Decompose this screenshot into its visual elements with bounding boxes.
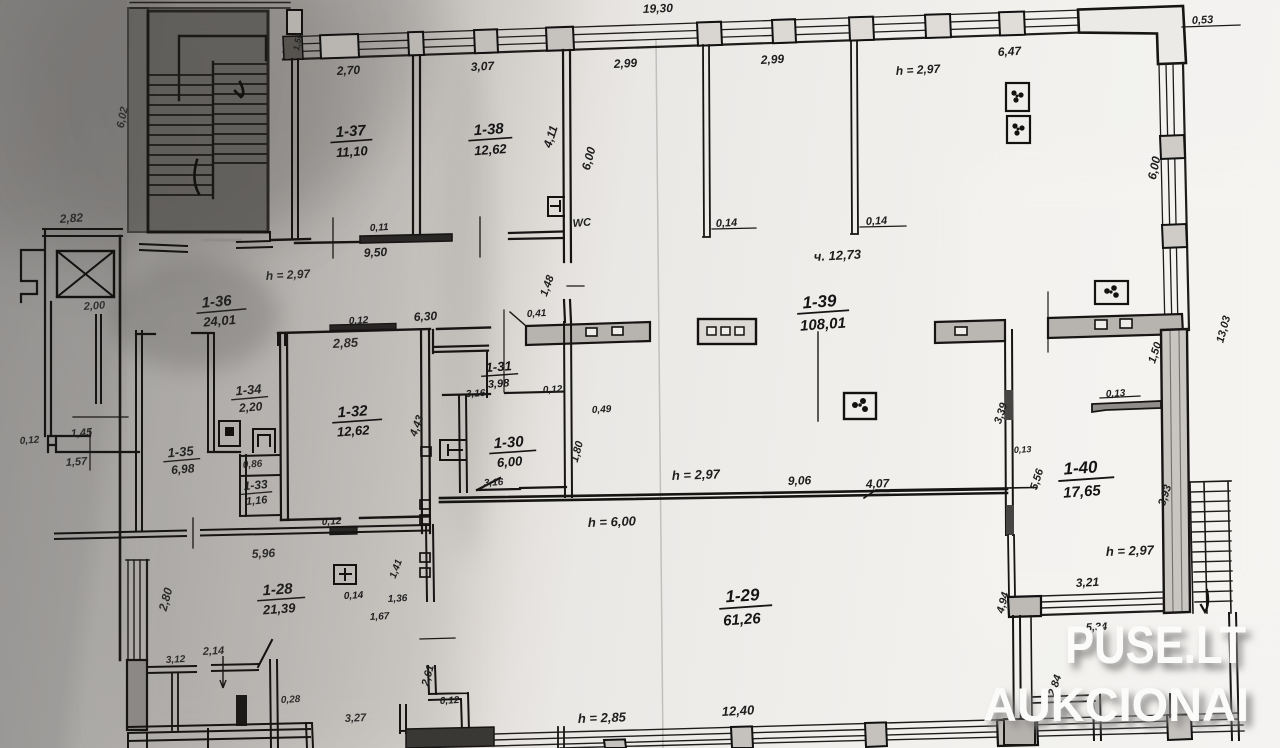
svg-text:0,86: 0,86 bbox=[242, 459, 263, 471]
svg-text:1-38: 1-38 bbox=[473, 120, 505, 139]
svg-text:0,28: 0,28 bbox=[281, 694, 301, 706]
svg-text:17,65: 17,65 bbox=[1063, 482, 1102, 502]
svg-text:1,16: 1,16 bbox=[245, 494, 268, 508]
svg-text:0,53: 0,53 bbox=[1192, 14, 1214, 27]
svg-text:3,16: 3,16 bbox=[466, 388, 486, 400]
svg-text:1,36: 1,36 bbox=[388, 593, 408, 605]
svg-text:12,40: 12,40 bbox=[721, 702, 755, 719]
svg-text:2,99: 2,99 bbox=[759, 52, 784, 67]
svg-text:h = 2,85: h = 2,85 bbox=[578, 709, 627, 726]
svg-text:0,13: 0,13 bbox=[1106, 388, 1126, 400]
svg-text:2,85: 2,85 bbox=[331, 335, 359, 351]
svg-text:21,39: 21,39 bbox=[261, 600, 296, 617]
svg-text:11,10: 11,10 bbox=[336, 143, 369, 160]
svg-text:6,30: 6,30 bbox=[413, 309, 437, 324]
svg-text:1-33: 1-33 bbox=[243, 477, 268, 493]
svg-text:h = 6,00: h = 6,00 bbox=[588, 513, 637, 530]
svg-text:61,26: 61,26 bbox=[723, 610, 762, 630]
svg-text:12,62: 12,62 bbox=[474, 141, 508, 158]
svg-text:2,14: 2,14 bbox=[202, 645, 225, 658]
svg-text:6,00: 6,00 bbox=[496, 453, 523, 470]
svg-text:h = 2,97: h = 2,97 bbox=[895, 62, 941, 78]
svg-text:6,98: 6,98 bbox=[170, 461, 195, 477]
svg-text:1-40: 1-40 bbox=[1063, 457, 1099, 478]
svg-text:1-34: 1-34 bbox=[235, 381, 263, 398]
svg-text:2,99: 2,99 bbox=[612, 56, 637, 71]
svg-text:1-28: 1-28 bbox=[262, 580, 294, 599]
svg-text:h = 2,97: h = 2,97 bbox=[672, 466, 721, 483]
svg-text:4,07: 4,07 bbox=[865, 476, 891, 491]
svg-text:3,27: 3,27 bbox=[345, 712, 368, 725]
svg-text:0,41: 0,41 bbox=[527, 308, 547, 320]
svg-text:ч. 12,73: ч. 12,73 bbox=[813, 246, 862, 263]
svg-text:h = 2,97: h = 2,97 bbox=[265, 267, 311, 283]
svg-text:0,12: 0,12 bbox=[543, 384, 563, 396]
svg-text:1,45: 1,45 bbox=[70, 426, 93, 440]
svg-text:1,67: 1,67 bbox=[370, 611, 390, 623]
svg-text:0,12: 0,12 bbox=[440, 695, 460, 707]
svg-text:WC: WC bbox=[572, 216, 592, 230]
svg-text:0,11: 0,11 bbox=[370, 222, 390, 234]
svg-text:3,21: 3,21 bbox=[1075, 575, 1099, 590]
svg-text:3,16: 3,16 bbox=[484, 477, 504, 489]
svg-text:1,57: 1,57 bbox=[65, 455, 88, 469]
svg-text:24,01: 24,01 bbox=[202, 312, 237, 330]
svg-text:0,49: 0,49 bbox=[592, 404, 612, 416]
svg-text:1-29: 1-29 bbox=[725, 585, 761, 606]
svg-text:1-32: 1-32 bbox=[337, 402, 369, 421]
svg-text:1-35: 1-35 bbox=[167, 443, 195, 460]
svg-text:0,13: 0,13 bbox=[1014, 444, 1032, 455]
svg-text:9,06: 9,06 bbox=[788, 473, 812, 488]
svg-text:0,14: 0,14 bbox=[716, 217, 738, 230]
svg-text:h = 2,97: h = 2,97 bbox=[1106, 542, 1155, 559]
svg-text:AUKCIONAI: AUKCIONAI bbox=[983, 678, 1249, 731]
svg-text:0,14: 0,14 bbox=[344, 590, 364, 602]
svg-text:6,47: 6,47 bbox=[997, 44, 1022, 59]
svg-text:1-30: 1-30 bbox=[493, 433, 525, 452]
svg-text:0,14: 0,14 bbox=[866, 215, 888, 228]
svg-text:1-39: 1-39 bbox=[802, 291, 838, 312]
svg-text:2,00: 2,00 bbox=[82, 299, 106, 313]
svg-text:19,30: 19,30 bbox=[643, 1, 674, 16]
svg-text:PUSE.LT: PUSE.LT bbox=[1065, 616, 1246, 675]
svg-text:1-31: 1-31 bbox=[485, 358, 512, 375]
svg-text:12,62: 12,62 bbox=[336, 422, 370, 439]
svg-text:108,01: 108,01 bbox=[799, 315, 846, 335]
svg-text:1-37: 1-37 bbox=[335, 122, 367, 141]
svg-text:0,12: 0,12 bbox=[349, 315, 369, 327]
svg-text:3,07: 3,07 bbox=[470, 59, 495, 74]
svg-text:2,20: 2,20 bbox=[237, 399, 263, 415]
svg-text:9,50: 9,50 bbox=[363, 245, 387, 260]
svg-text:1-36: 1-36 bbox=[201, 292, 233, 312]
svg-text:3,12: 3,12 bbox=[166, 654, 186, 666]
svg-text:2,70: 2,70 bbox=[335, 63, 360, 78]
svg-text:3,98: 3,98 bbox=[487, 377, 510, 391]
svg-text:5,96: 5,96 bbox=[251, 546, 275, 561]
svg-text:0,12: 0,12 bbox=[19, 435, 40, 447]
svg-text:2,82: 2,82 bbox=[58, 210, 84, 226]
